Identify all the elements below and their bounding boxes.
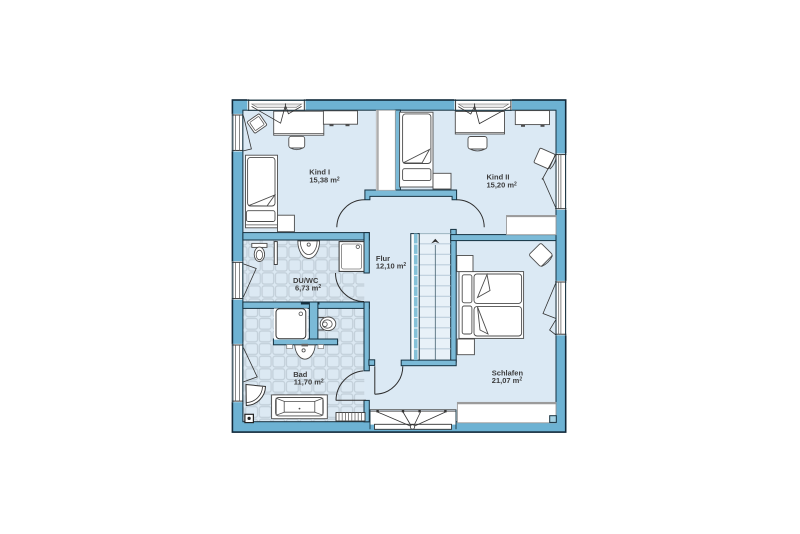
svg-text:12,10 m2: 12,10 m2: [376, 261, 407, 270]
svg-text:15,38 m2: 15,38 m2: [309, 176, 340, 185]
svg-text:15,20 m2: 15,20 m2: [487, 181, 518, 190]
svg-text:21,07 m2: 21,07 m2: [492, 376, 523, 385]
svg-text:6,73 m2: 6,73 m2: [295, 283, 321, 292]
svg-text:11,70 m2: 11,70 m2: [294, 378, 324, 387]
